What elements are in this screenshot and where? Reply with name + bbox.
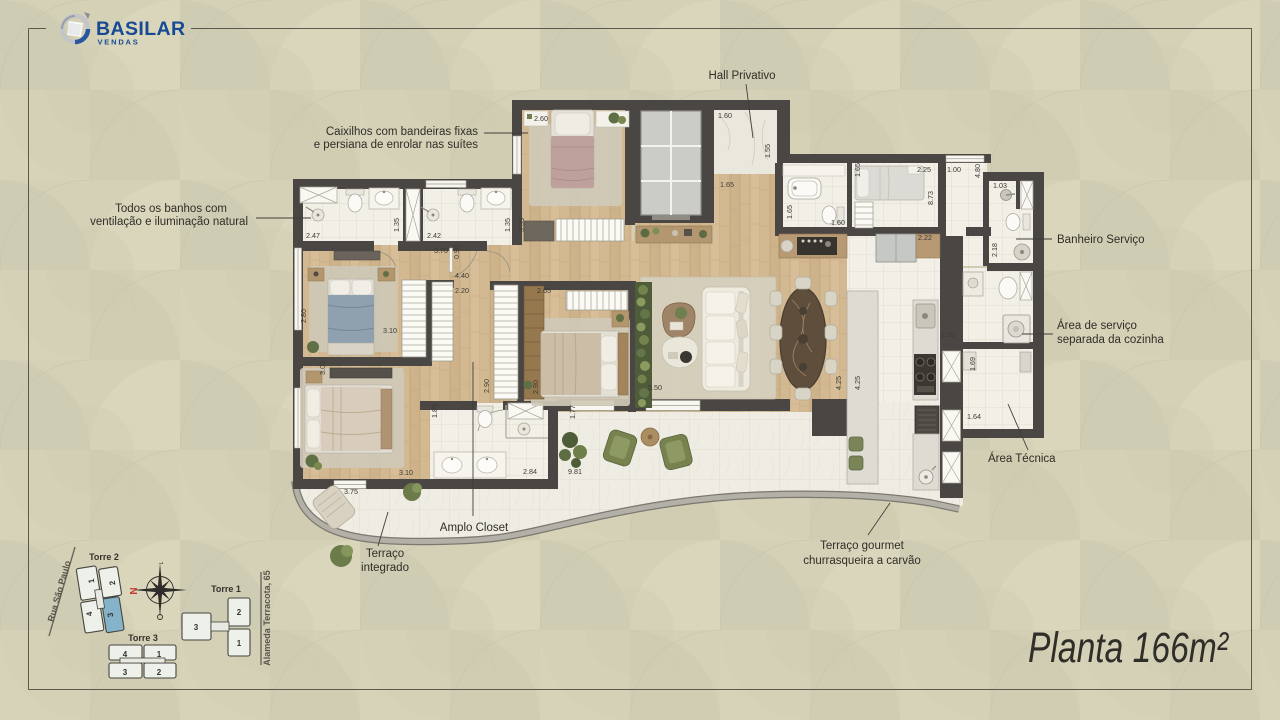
svg-text:integrado: integrado — [361, 562, 409, 574]
svg-text:ventilação e iluminação natura: ventilação e iluminação natural — [90, 216, 248, 228]
svg-text:3.70: 3.70 — [434, 246, 448, 255]
svg-text:2.20: 2.20 — [941, 330, 955, 339]
svg-text:2.42: 2.42 — [427, 231, 441, 240]
svg-text:4.25: 4.25 — [834, 376, 843, 390]
svg-text:Área Técnica: Área Técnica — [988, 452, 1056, 465]
svg-text:churrasqueira a carvão: churrasqueira a carvão — [803, 555, 921, 567]
svg-text:Todos os banhos com: Todos os banhos com — [115, 203, 227, 215]
svg-text:4.40: 4.40 — [455, 271, 469, 280]
svg-text:2.60: 2.60 — [534, 114, 548, 123]
svg-text:4.25: 4.25 — [853, 376, 862, 390]
svg-text:5.50: 5.50 — [648, 383, 662, 392]
svg-text:3.00: 3.00 — [318, 361, 327, 375]
svg-text:L: L — [159, 561, 165, 564]
svg-text:3.10: 3.10 — [383, 326, 397, 335]
svg-text:2.22: 2.22 — [918, 233, 932, 242]
svg-text:Caixilhos com bandeiras fixas: Caixilhos com bandeiras fixas — [326, 126, 478, 138]
svg-text:2.84: 2.84 — [523, 467, 537, 476]
svg-text:e persiana de enrolar nas suít: e persiana de enrolar nas suítes — [314, 139, 479, 151]
svg-text:0.90: 0.90 — [452, 245, 461, 259]
svg-text:1.03: 1.03 — [993, 181, 1007, 190]
svg-text:2.65: 2.65 — [537, 286, 551, 295]
svg-text:3.75: 3.75 — [344, 487, 358, 496]
svg-text:Banheiro Serviço: Banheiro Serviço — [1057, 234, 1145, 246]
svg-text:9.81: 9.81 — [568, 467, 582, 476]
svg-text:N: N — [129, 587, 140, 594]
svg-text:1.69: 1.69 — [968, 357, 977, 371]
svg-text:1.00: 1.00 — [947, 165, 961, 174]
svg-text:Hall Privativo: Hall Privativo — [708, 70, 775, 82]
svg-text:3.10: 3.10 — [399, 468, 413, 477]
svg-text:VENDAS: VENDAS — [98, 38, 140, 47]
svg-text:4: 4 — [123, 650, 128, 659]
svg-text:Área de serviço: Área de serviço — [1057, 319, 1137, 332]
svg-text:Torre 1: Torre 1 — [211, 584, 241, 594]
svg-text:2.20: 2.20 — [455, 286, 469, 295]
svg-text:2: 2 — [237, 608, 242, 617]
svg-text:Torre 3: Torre 3 — [128, 633, 158, 643]
svg-text:1.85: 1.85 — [430, 404, 439, 418]
svg-text:Amplo Closet: Amplo Closet — [440, 522, 509, 534]
svg-text:4.80: 4.80 — [973, 164, 982, 178]
svg-text:Alameda Terracota, 65: Alameda Terracota, 65 — [262, 570, 272, 665]
svg-text:1.35: 1.35 — [503, 218, 512, 232]
svg-text:3.35: 3.35 — [517, 218, 526, 232]
svg-text:1.60: 1.60 — [718, 111, 732, 120]
svg-text:2.90: 2.90 — [482, 379, 491, 393]
svg-text:1.35: 1.35 — [392, 218, 401, 232]
svg-text:2.80: 2.80 — [299, 309, 308, 323]
svg-text:1: 1 — [237, 639, 242, 648]
svg-text:3: 3 — [123, 668, 128, 677]
svg-text:1.64: 1.64 — [967, 412, 981, 421]
svg-text:1.65: 1.65 — [853, 163, 862, 177]
svg-text:2: 2 — [157, 668, 162, 677]
svg-text:8.73: 8.73 — [926, 191, 935, 205]
svg-text:Planta 166m²: Planta 166m² — [1028, 624, 1229, 672]
svg-text:2.25: 2.25 — [917, 165, 931, 174]
svg-text:1: 1 — [157, 650, 162, 659]
svg-text:1.77: 1.77 — [568, 405, 577, 419]
svg-text:Terraço gourmet: Terraço gourmet — [820, 540, 905, 552]
svg-text:2.47: 2.47 — [306, 231, 320, 240]
svg-text:2.18: 2.18 — [990, 243, 999, 257]
svg-text:1.65: 1.65 — [785, 205, 794, 219]
svg-text:Terraço: Terraço — [366, 548, 404, 560]
svg-text:3: 3 — [194, 623, 199, 632]
svg-text:Torre 2: Torre 2 — [89, 552, 119, 562]
svg-text:1.55: 1.55 — [763, 144, 772, 158]
svg-text:2.90: 2.90 — [531, 380, 540, 394]
svg-text:1.60: 1.60 — [831, 218, 845, 227]
svg-text:1.65: 1.65 — [720, 180, 734, 189]
svg-text:separada da cozinha: separada da cozinha — [1057, 334, 1164, 346]
